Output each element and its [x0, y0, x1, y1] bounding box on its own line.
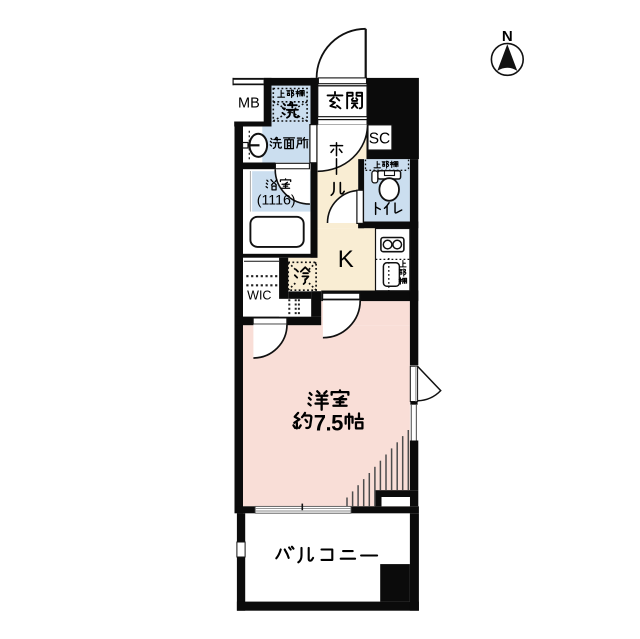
svg-text:(1116): (1116): [257, 193, 296, 209]
svg-text:K: K: [338, 246, 354, 273]
svg-text:N: N: [502, 28, 513, 45]
svg-text:MB: MB: [238, 96, 260, 112]
svg-text:7.5: 7.5: [314, 410, 343, 435]
svg-text:WIC: WIC: [247, 289, 271, 303]
svg-text:SC: SC: [369, 131, 391, 148]
